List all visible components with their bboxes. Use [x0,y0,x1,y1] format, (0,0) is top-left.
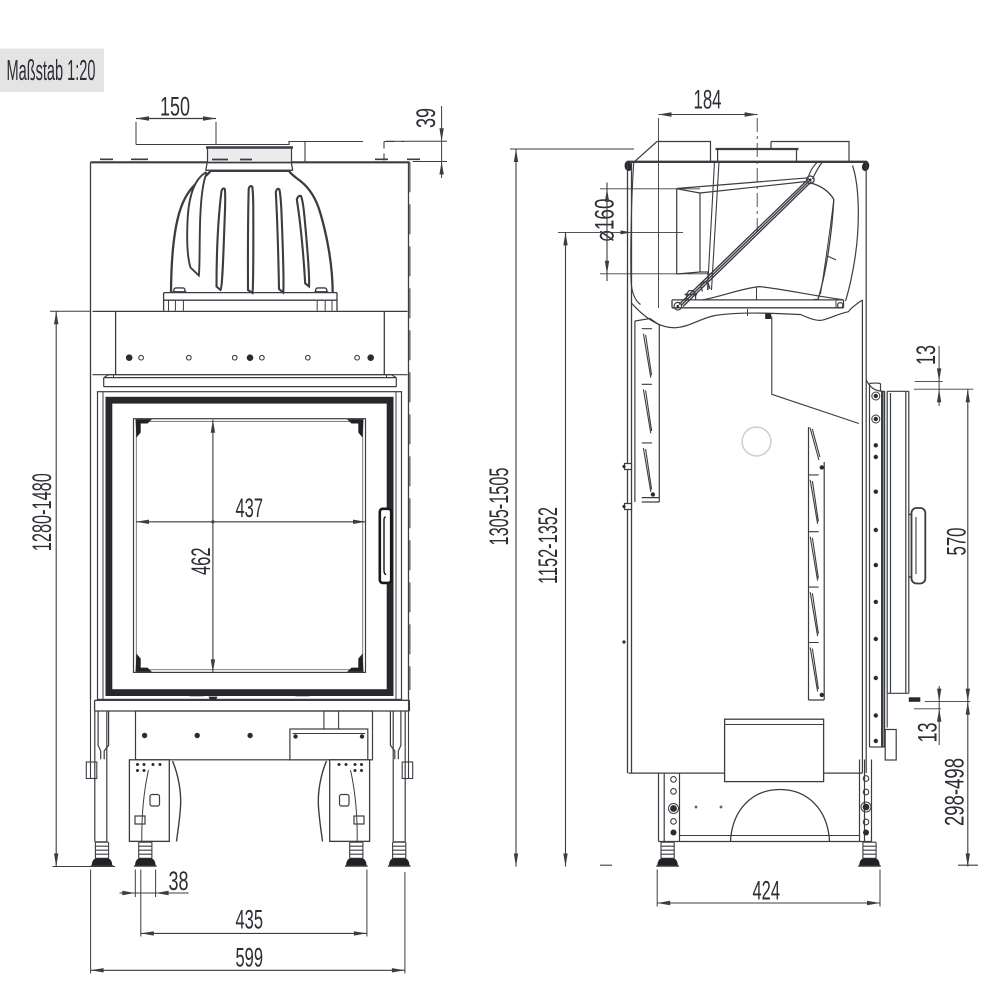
svg-text:1305-1505: 1305-1505 [484,468,514,546]
svg-text:⌀160: ⌀160 [590,199,620,242]
svg-text:150: 150 [160,92,190,122]
svg-text:1152-1352: 1152-1352 [533,507,563,584]
svg-text:Maßstab 1:20: Maßstab 1:20 [7,55,96,87]
svg-text:13: 13 [911,345,941,365]
svg-text:424: 424 [753,876,781,906]
svg-text:184: 184 [694,85,722,115]
svg-text:599: 599 [236,943,264,973]
svg-text:298-498: 298-498 [940,758,970,826]
svg-text:38: 38 [169,866,189,896]
svg-text:1280-1480: 1280-1480 [27,473,57,551]
svg-text:435: 435 [236,905,264,935]
svg-text:437: 437 [236,493,264,523]
svg-text:39: 39 [411,108,441,128]
svg-text:13: 13 [913,723,943,743]
svg-text:462: 462 [186,548,216,576]
svg-text:570: 570 [942,528,972,556]
